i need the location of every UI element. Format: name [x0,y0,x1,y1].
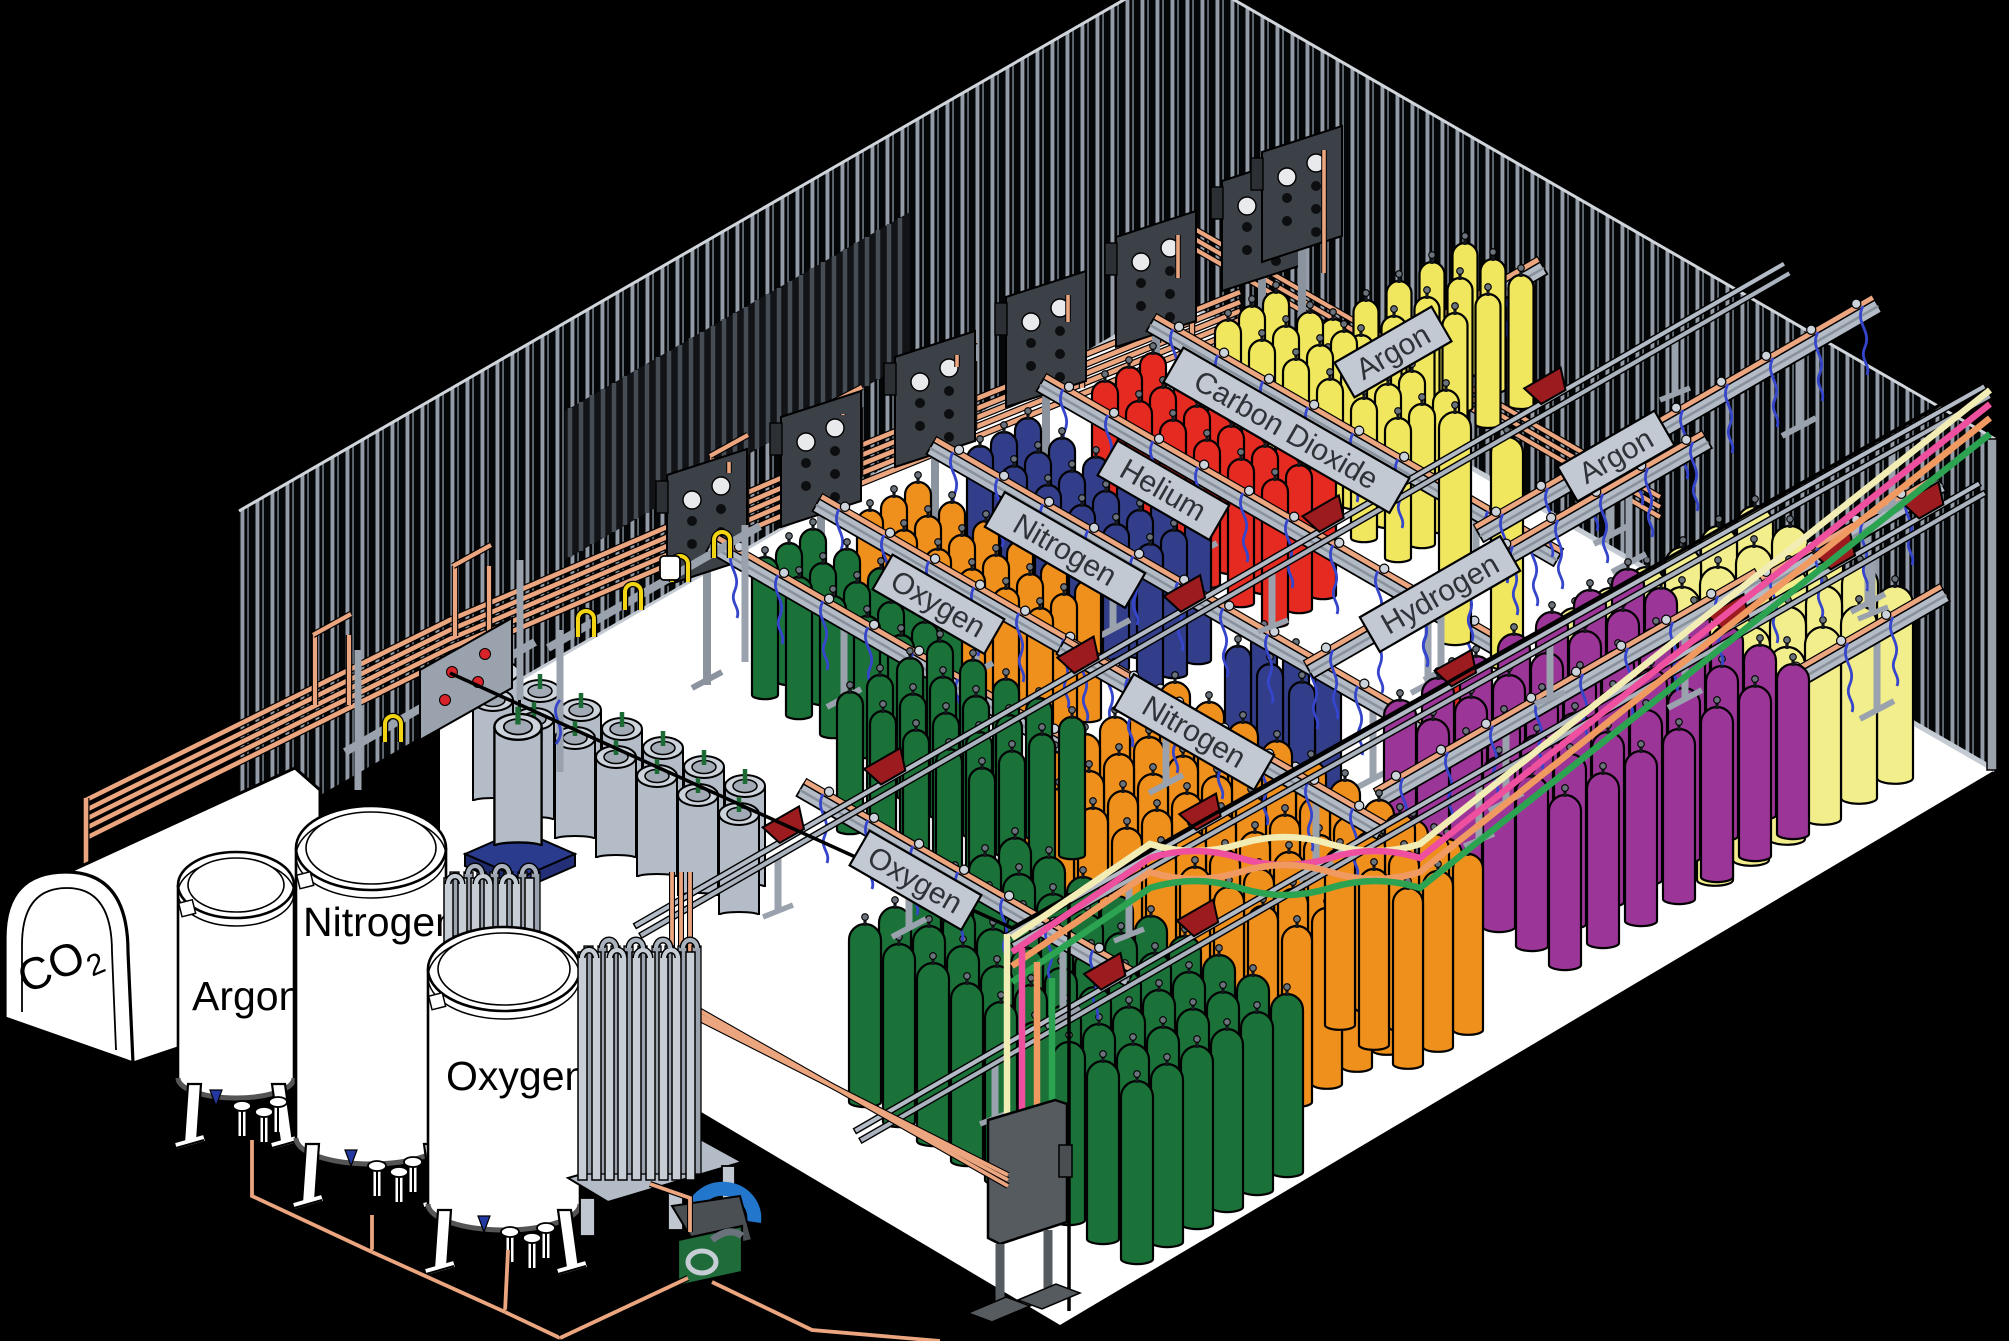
svg-text:Argon: Argon [192,973,301,1019]
svg-text:Nitrogen: Nitrogen [303,899,458,945]
svg-text:Oxygen: Oxygen [446,1053,587,1099]
